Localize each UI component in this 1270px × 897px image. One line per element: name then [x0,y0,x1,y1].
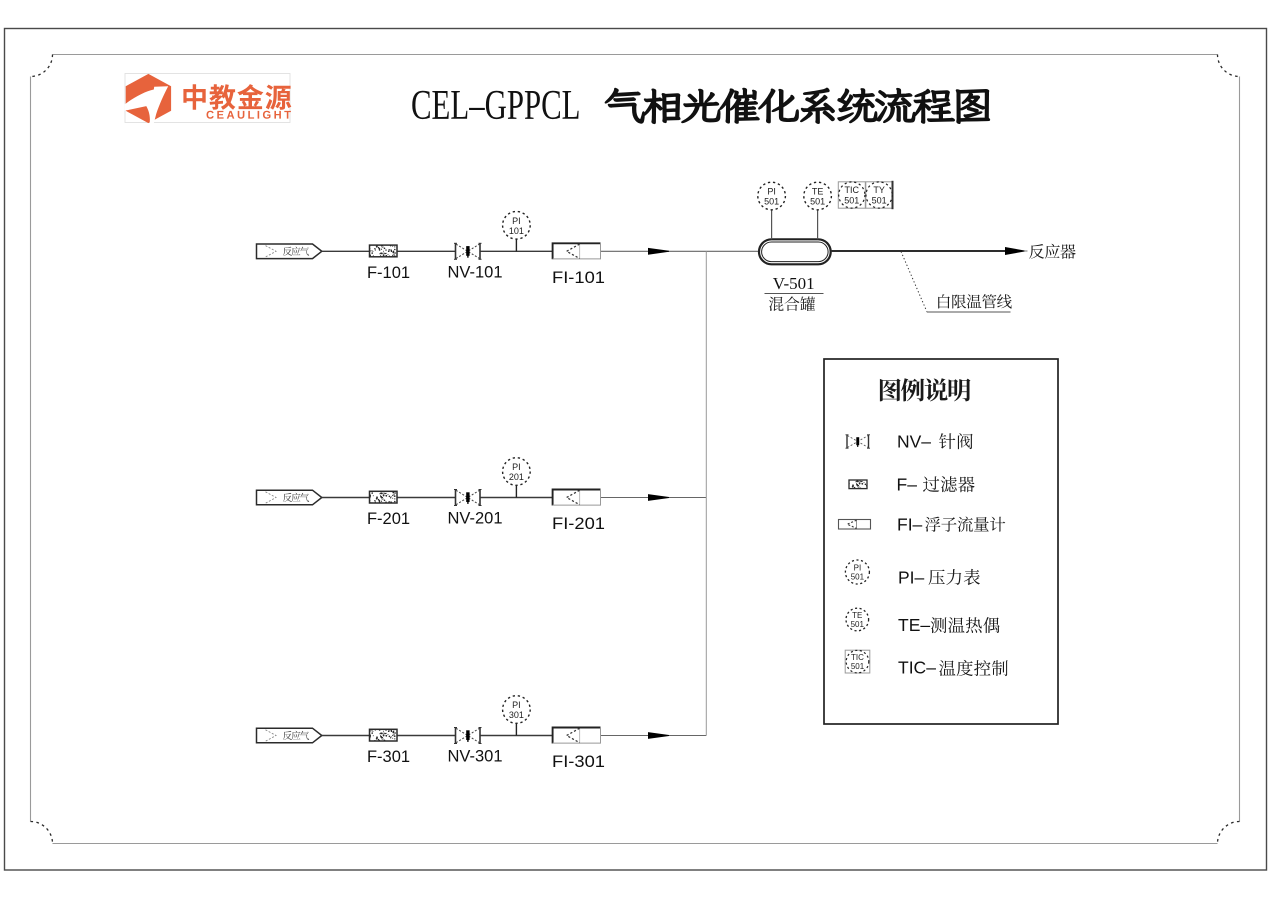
svg-text:F–: F– [897,474,918,494]
svg-text:TY: TY [873,185,885,195]
svg-text:TIC: TIC [851,653,864,662]
svg-text:PI: PI [512,216,521,226]
svg-text:501: 501 [764,197,779,207]
svg-text:TE: TE [852,611,862,620]
svg-text:NV-101: NV-101 [447,263,502,281]
svg-text:301: 301 [509,710,524,720]
svg-text:TE–: TE– [898,615,930,635]
svg-text:NV-201: NV-201 [447,510,502,528]
svg-text:PI: PI [512,462,521,472]
svg-text:101: 101 [509,226,524,236]
svg-text:F-301: F-301 [367,748,410,766]
svg-text:PI: PI [854,564,862,573]
svg-text:F-201: F-201 [367,510,410,528]
svg-text:V-501: V-501 [773,274,815,293]
svg-text:201: 201 [509,472,524,482]
svg-text:PI–: PI– [898,567,925,587]
svg-text:501: 501 [844,195,859,205]
svg-text:FI–: FI– [897,514,923,534]
svg-text:TIC–: TIC– [898,657,936,677]
svg-text:NV-301: NV-301 [447,748,502,766]
svg-text:NV–: NV– [897,431,931,451]
svg-text:501: 501 [810,197,825,207]
svg-text:CEL–GPPCL: CEL–GPPCL [411,83,581,129]
svg-text:TIC: TIC [845,185,860,195]
svg-text:501: 501 [872,195,887,205]
svg-text:F-101: F-101 [367,264,410,282]
svg-text:PI: PI [767,187,776,197]
svg-text:501: 501 [851,573,865,582]
svg-text:PI: PI [512,700,521,710]
svg-text:TE: TE [812,187,824,197]
svg-text:501: 501 [851,662,865,671]
svg-text:501: 501 [851,620,865,629]
svg-text:FI-201: FI-201 [552,515,605,533]
svg-text:FI-301: FI-301 [552,753,605,771]
svg-text:FI-101: FI-101 [552,269,605,287]
